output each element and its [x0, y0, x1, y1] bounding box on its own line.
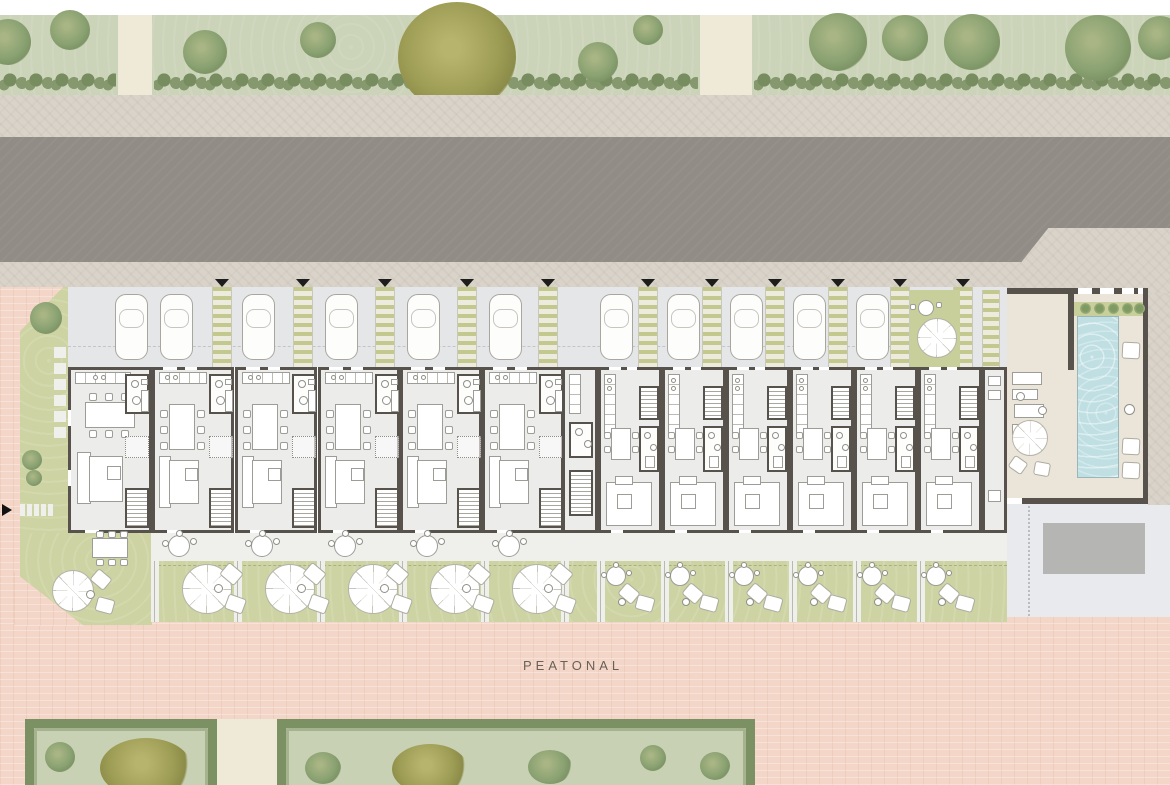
- tree: [700, 752, 730, 780]
- pedestrian-zone-label: PEATONAL: [523, 658, 623, 673]
- tree: [528, 750, 572, 784]
- tree: [305, 752, 341, 784]
- site-plan: PEATONAL: [0, 0, 1170, 785]
- tree: [45, 742, 75, 772]
- tree: [640, 745, 666, 771]
- planting-bed: [277, 719, 755, 785]
- garden-path: [217, 719, 277, 785]
